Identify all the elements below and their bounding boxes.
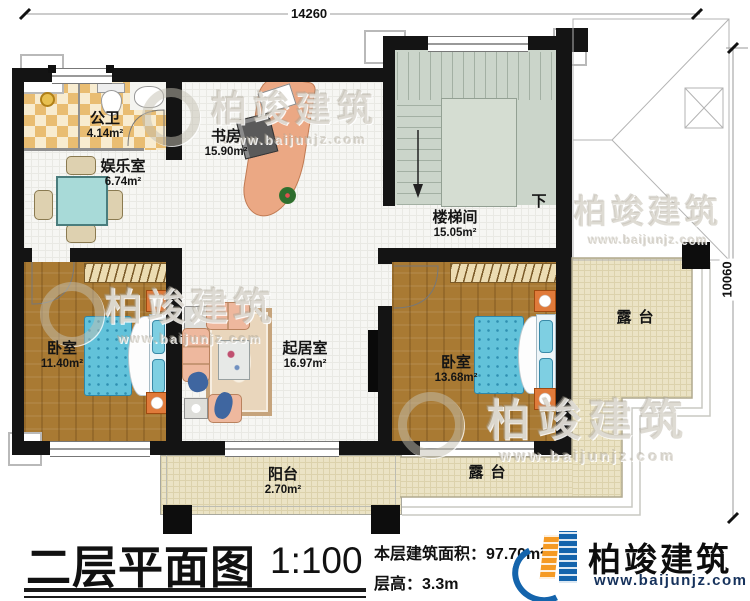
- pillow: [539, 358, 553, 391]
- column: [371, 505, 400, 534]
- wall: [70, 248, 172, 262]
- nightstand: [146, 290, 168, 312]
- logo-building-blue: [559, 531, 577, 583]
- room-label-terrace-bottom: 露台: [450, 464, 524, 482]
- nightstand: [534, 290, 556, 312]
- watermark-logo-icon: [398, 392, 464, 458]
- floor-height-label: 层高：: [374, 576, 422, 593]
- page-title: 二层平面图: [26, 531, 256, 596]
- column: [163, 505, 192, 534]
- floor-height-info: 层高：3.3m: [374, 570, 458, 594]
- watermark: 柏竣建筑 www.baijunjz.com: [548, 185, 748, 247]
- brand-website: www.baijunjz.com: [594, 572, 747, 589]
- window: [52, 68, 112, 84]
- tv-icon: [368, 330, 378, 392]
- title-underline: [24, 596, 366, 598]
- wall: [378, 306, 392, 455]
- window-post: [48, 65, 56, 73]
- wall: [383, 44, 395, 206]
- room-label-balcony: 阳台 2.70m²: [247, 466, 319, 498]
- window-post: [106, 65, 114, 73]
- room-label-living: 起居室 16.97m²: [268, 340, 342, 372]
- roof-outline: [573, 19, 729, 260]
- pillow: [539, 320, 553, 353]
- terrace-right-floor: [572, 258, 692, 398]
- dimension-right: 10060: [720, 258, 735, 300]
- stair-treads-left: [397, 100, 443, 205]
- window: [428, 36, 528, 52]
- nightstand: [534, 388, 556, 410]
- nightstand: [146, 392, 168, 414]
- chair: [34, 190, 53, 220]
- window: [50, 441, 150, 457]
- brand-logo-icon: [512, 531, 586, 597]
- wall: [556, 36, 572, 455]
- stair-landing: [441, 98, 517, 207]
- title-underline: [24, 588, 366, 592]
- stair-treads-top: [397, 52, 556, 100]
- wall: [166, 248, 182, 455]
- sofa-two-seat: [206, 302, 250, 330]
- room-label-bedroom-left: 卧室 11.40m²: [26, 340, 98, 372]
- floor-area-label: 本层建筑面积：: [374, 546, 486, 563]
- coffee-table: [218, 340, 250, 380]
- wall-corner: [556, 28, 588, 52]
- wall: [12, 248, 32, 262]
- bed-headboard: [536, 314, 556, 396]
- room-label-terrace-right: 露台: [598, 309, 672, 327]
- column: [682, 242, 710, 269]
- pillow: [152, 359, 165, 393]
- stair-down-label: 下: [526, 190, 552, 211]
- shower-head-icon: [40, 92, 55, 107]
- terrace-step-floor: [572, 398, 622, 497]
- room-label-bath: 公卫 4.14m²: [70, 110, 140, 142]
- wall: [378, 248, 392, 264]
- room-label-bedroom-right: 卧室 13.68m²: [420, 354, 492, 386]
- pillow: [152, 320, 165, 354]
- room-label-play: 娱乐室 6.74m²: [86, 158, 160, 190]
- room-label-stairwell: 楼梯间 15.05m²: [414, 209, 496, 241]
- drawing-scale: 1:100: [270, 540, 363, 582]
- plant-icon: [279, 187, 296, 204]
- watermark-logo-icon: [40, 282, 104, 346]
- dimension-top: 14260: [288, 6, 330, 21]
- partition-wall: [24, 148, 144, 151]
- side-table: [184, 306, 208, 330]
- side-table: [184, 398, 208, 419]
- room-label-study: 书房 15.90m²: [190, 128, 262, 160]
- floor-plan-canvas: 公卫 4.14m² 娱乐室 6.74m² 书房 15.90m² 楼梯间 15.0…: [0, 0, 750, 601]
- wardrobe: [450, 263, 558, 283]
- balcony-sliding-door: [225, 441, 339, 457]
- floor-height-value: 3.3m: [422, 576, 458, 593]
- wall: [383, 248, 572, 262]
- chair: [66, 224, 96, 243]
- wardrobe: [84, 263, 172, 283]
